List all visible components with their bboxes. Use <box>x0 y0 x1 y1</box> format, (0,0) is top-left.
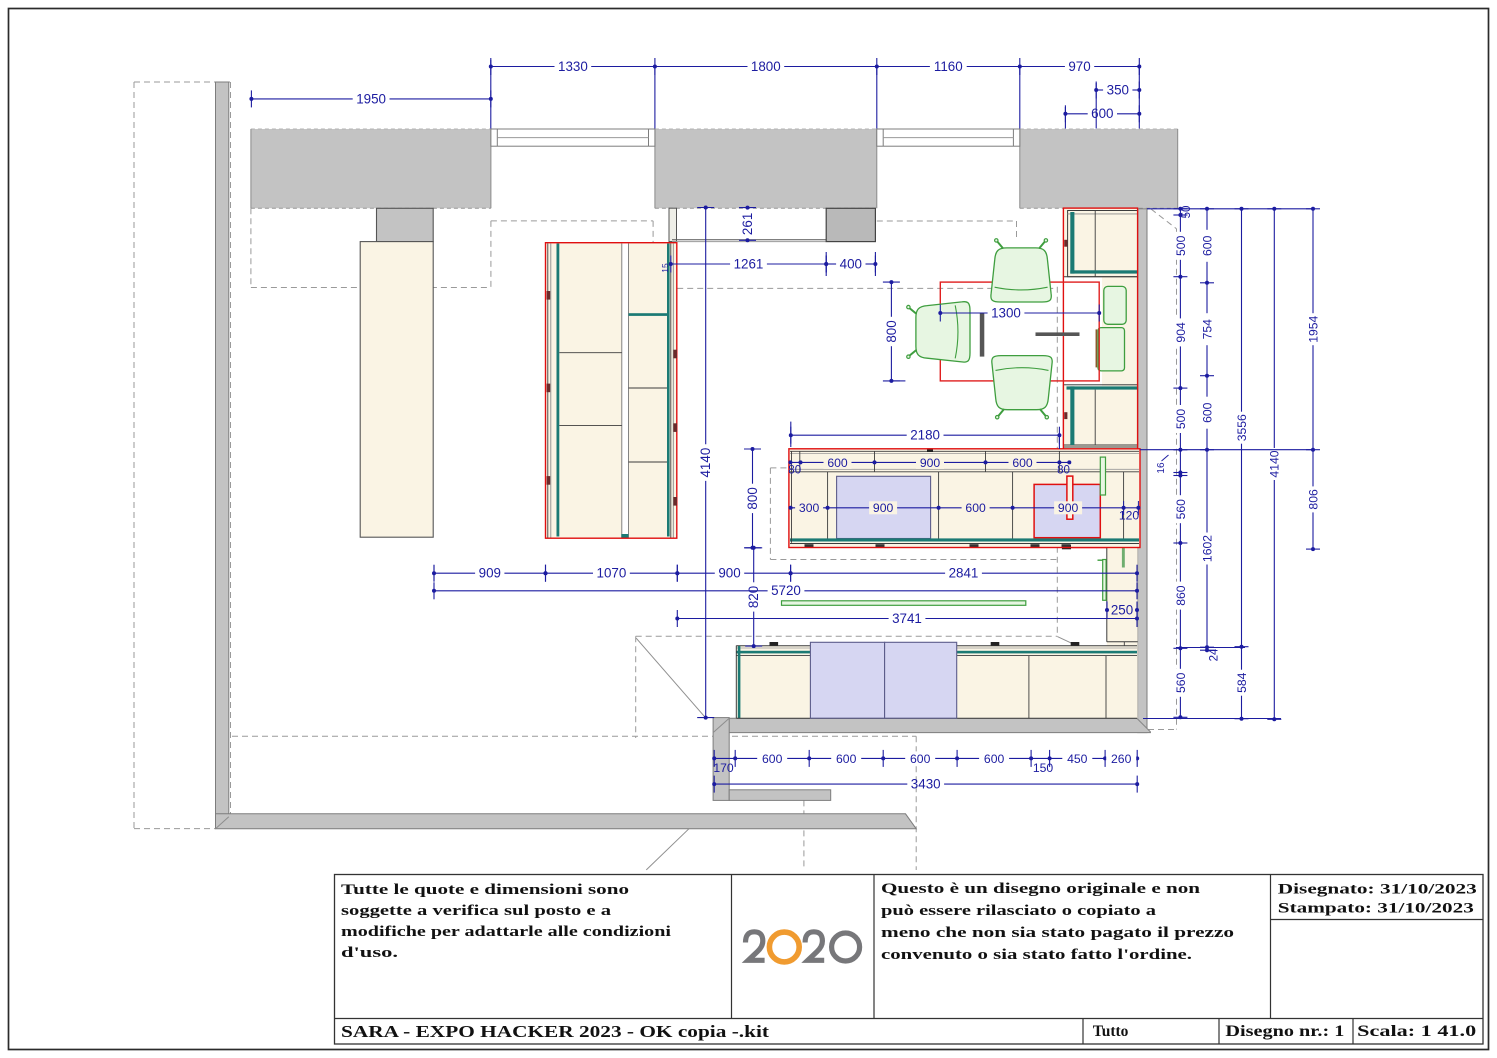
svg-text:600: 600 <box>965 501 986 515</box>
svg-text:800: 800 <box>745 487 760 509</box>
svg-text:80: 80 <box>1057 465 1070 477</box>
svg-text:600: 600 <box>910 752 931 766</box>
svg-text:d'uso.: d'uso. <box>341 944 398 961</box>
svg-text:2841: 2841 <box>949 566 979 581</box>
svg-text:900: 900 <box>718 566 740 581</box>
svg-text:900: 900 <box>920 456 941 470</box>
svg-text:3556: 3556 <box>1235 414 1249 441</box>
svg-text:SARA - EXPO HACKER 2023 - OK c: SARA - EXPO HACKER 2023 - OK copia -.kit <box>341 1022 770 1041</box>
svg-text:584: 584 <box>1235 672 1249 693</box>
svg-text:970: 970 <box>1068 59 1090 74</box>
svg-text:Stampato: 31/10/2023: Stampato: 31/10/2023 <box>1278 900 1475 917</box>
svg-text:Questo è un disegno originale: Questo è un disegno originale e non <box>881 880 1201 897</box>
svg-text:soggette a verifica sul posto: soggette a verifica sul posto e a <box>341 902 612 919</box>
svg-text:1160: 1160 <box>934 59 963 74</box>
svg-text:800: 800 <box>884 320 899 342</box>
svg-text:261: 261 <box>740 213 755 235</box>
svg-text:5720: 5720 <box>771 583 801 598</box>
svg-text:860: 860 <box>1174 585 1188 606</box>
svg-text:820: 820 <box>746 586 761 608</box>
svg-text:Disegnato: 31/10/2023: Disegnato: 31/10/2023 <box>1278 881 1478 898</box>
svg-text:900: 900 <box>1058 501 1079 515</box>
svg-text:600: 600 <box>1091 106 1113 121</box>
svg-text:600: 600 <box>827 456 848 470</box>
svg-text:Scala: 1 41.0: Scala: 1 41.0 <box>1357 1023 1476 1040</box>
svg-text:400: 400 <box>840 256 862 271</box>
svg-text:Disegno nr.: 1: Disegno nr.: 1 <box>1225 1023 1344 1040</box>
svg-text:1070: 1070 <box>597 566 627 581</box>
svg-text:1330: 1330 <box>558 59 588 74</box>
svg-text:500: 500 <box>1174 235 1188 256</box>
svg-text:Tutte le quote e dimensioni so: Tutte le quote e dimensioni sono <box>341 881 630 898</box>
svg-text:15: 15 <box>660 263 670 273</box>
svg-text:16: 16 <box>1156 462 1167 474</box>
svg-text:909: 909 <box>479 566 501 581</box>
svg-text:450: 450 <box>1067 752 1088 766</box>
svg-text:80: 80 <box>788 465 801 477</box>
svg-text:754: 754 <box>1200 319 1214 340</box>
svg-text:170: 170 <box>713 761 734 775</box>
svg-text:806: 806 <box>1306 489 1320 510</box>
svg-text:300: 300 <box>799 501 820 515</box>
svg-text:1954: 1954 <box>1306 315 1320 342</box>
svg-text:1800: 1800 <box>751 59 781 74</box>
svg-text:900: 900 <box>873 501 894 515</box>
svg-text:250: 250 <box>1111 602 1133 617</box>
svg-text:50: 50 <box>1181 206 1193 219</box>
svg-text:2180: 2180 <box>910 428 940 443</box>
svg-text:560: 560 <box>1174 499 1188 520</box>
svg-text:600: 600 <box>1012 456 1033 470</box>
svg-text:può essere rilasciato o copiat: può essere rilasciato o copiato a <box>881 902 1157 919</box>
svg-text:1300: 1300 <box>991 305 1021 320</box>
svg-text:904: 904 <box>1174 322 1188 343</box>
svg-text:600: 600 <box>836 752 857 766</box>
svg-text:24: 24 <box>1208 648 1220 661</box>
svg-text:500: 500 <box>1174 409 1188 430</box>
svg-text:600: 600 <box>1200 402 1214 423</box>
svg-text:4140: 4140 <box>1268 450 1282 477</box>
svg-text:560: 560 <box>1174 672 1188 693</box>
svg-text:1950: 1950 <box>356 91 386 106</box>
svg-text:1602: 1602 <box>1200 535 1214 562</box>
svg-text:3741: 3741 <box>892 611 922 626</box>
svg-text:600: 600 <box>984 752 1005 766</box>
svg-text:modifiche per adattarle alle c: modifiche per adattarle alle condizioni <box>341 923 671 940</box>
svg-text:600: 600 <box>1200 235 1214 256</box>
svg-text:1261: 1261 <box>734 256 764 271</box>
svg-text:260: 260 <box>1111 752 1132 766</box>
svg-text:4140: 4140 <box>698 448 713 478</box>
svg-text:convenuto o sia stato fatto l': convenuto o sia stato fatto l'ordine. <box>881 946 1192 963</box>
svg-text:120: 120 <box>1119 509 1140 523</box>
svg-text:150: 150 <box>1033 761 1054 775</box>
svg-text:meno che non sia stato pagato: meno che non sia stato pagato il prezzo <box>881 924 1235 941</box>
svg-text:350: 350 <box>1107 82 1129 97</box>
svg-text:Tutto: Tutto <box>1093 1023 1129 1040</box>
svg-text:600: 600 <box>762 752 783 766</box>
svg-text:3430: 3430 <box>911 777 941 792</box>
